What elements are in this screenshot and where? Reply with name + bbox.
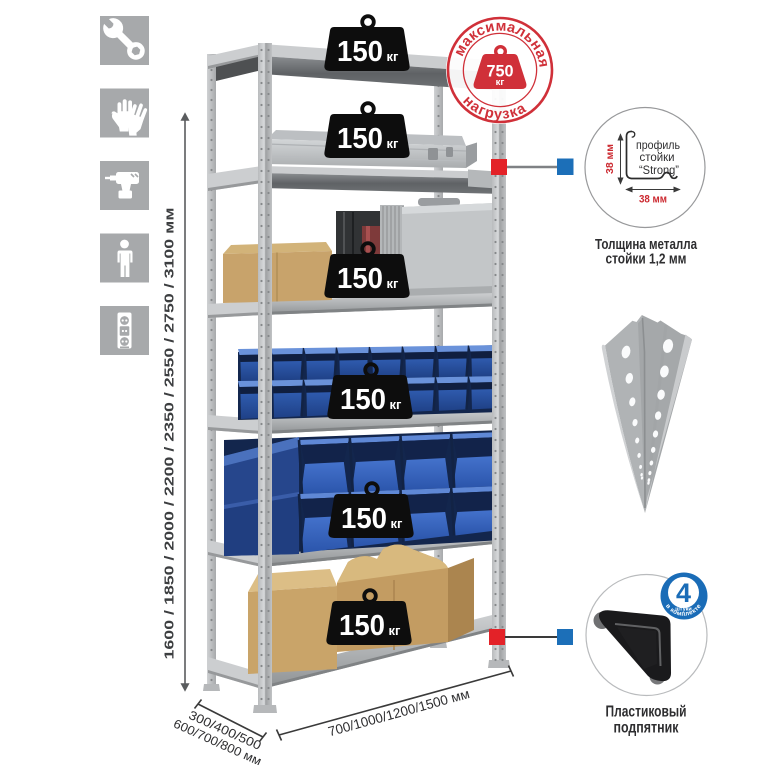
svg-text:4: 4 — [676, 578, 691, 608]
svg-text:кг: кг — [387, 276, 400, 291]
svg-text:стойки 1,2 мм: стойки 1,2 мм — [606, 252, 687, 268]
svg-text:кг: кг — [496, 77, 505, 88]
svg-text:кг: кг — [387, 49, 400, 64]
svg-text:кг: кг — [391, 516, 404, 531]
svg-text:“Strong”: “Strong” — [639, 163, 679, 177]
svg-text:стойки: стойки — [640, 150, 675, 164]
svg-text:кг: кг — [390, 397, 403, 412]
svg-text:150: 150 — [340, 384, 386, 416]
svg-text:150: 150 — [337, 123, 383, 155]
svg-text:38 мм: 38 мм — [639, 194, 667, 206]
svg-text:150: 150 — [341, 503, 387, 535]
svg-text:кг: кг — [387, 136, 400, 151]
svg-text:150: 150 — [337, 263, 383, 295]
svg-text:кг: кг — [389, 623, 402, 638]
svg-text:150: 150 — [337, 36, 383, 68]
svg-text:38 мм: 38 мм — [605, 144, 616, 174]
svg-text:Пластиковый: Пластиковый — [606, 704, 687, 721]
svg-text:1600 / 1850 / 2000 / 2200 / 23: 1600 / 1850 / 2000 / 2200 / 2350 / 2550 … — [162, 208, 177, 660]
svg-text:подпятник: подпятник — [614, 720, 680, 737]
svg-text:150: 150 — [339, 610, 385, 642]
